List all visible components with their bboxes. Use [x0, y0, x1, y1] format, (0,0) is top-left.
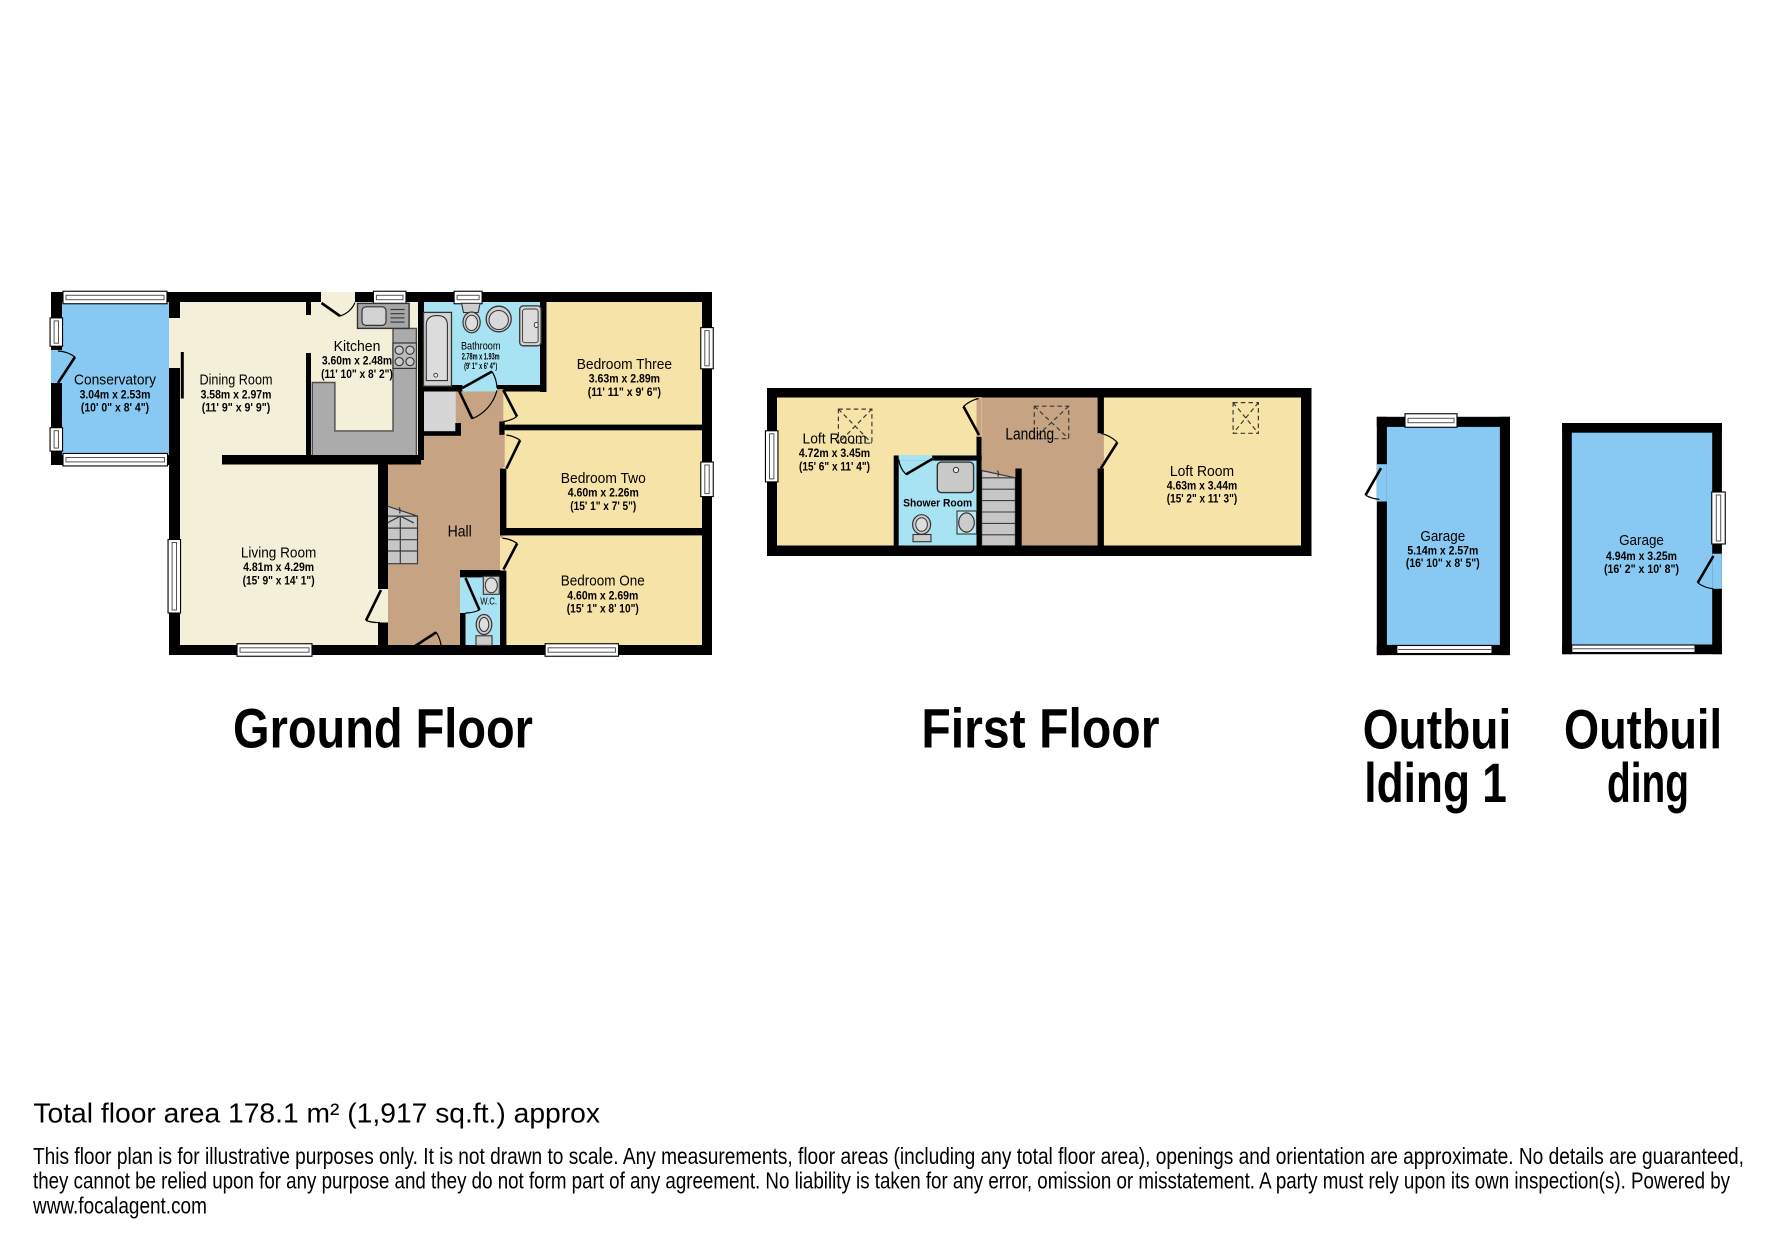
svg-text:This floor plan is for illustr: This floor plan is for illustrative purp…: [33, 1143, 1744, 1169]
svg-text:Ground Floor: Ground Floor: [233, 697, 533, 760]
svg-text:(10' 0" x 8' 4"): (10' 0" x 8' 4"): [81, 401, 149, 415]
svg-text:First Floor: First Floor: [921, 697, 1159, 760]
svg-text:www.focalagent.com: www.focalagent.com: [32, 1193, 207, 1219]
svg-text:3.63m x 2.89m: 3.63m x 2.89m: [589, 372, 660, 386]
svg-text:Bedroom Two: Bedroom Two: [561, 471, 646, 487]
svg-text:ding: ding: [1607, 751, 1689, 814]
svg-text:W.C.: W.C.: [480, 597, 497, 608]
svg-text:Bedroom Three: Bedroom Three: [577, 357, 672, 373]
svg-text:Bedroom One: Bedroom One: [561, 574, 645, 590]
svg-text:4.94m x 3.25m: 4.94m x 3.25m: [1606, 549, 1677, 563]
svg-text:(9' 1" x 6' 4"): (9' 1" x 6' 4"): [464, 361, 497, 371]
svg-text:(15' 1" x 8' 10"): (15' 1" x 8' 10"): [567, 602, 639, 616]
svg-text:Shower Room: Shower Room: [903, 497, 972, 509]
svg-text:(16' 10" x 8' 5"): (16' 10" x 8' 5"): [1406, 556, 1480, 570]
svg-text:4.81m x 4.29m: 4.81m x 4.29m: [243, 560, 314, 574]
svg-text:(11' 9" x 9' 9"): (11' 9" x 9' 9"): [202, 401, 271, 415]
svg-text:Living Room: Living Room: [241, 546, 317, 562]
svg-text:Loft Room: Loft Room: [1170, 464, 1234, 480]
svg-text:4.72m x 3.45m: 4.72m x 3.45m: [799, 446, 870, 460]
svg-text:(11' 11" x 9' 6"): (11' 11" x 9' 6"): [588, 385, 661, 399]
svg-text:(15' 1" x 7' 5"): (15' 1" x 7' 5"): [570, 499, 636, 513]
svg-text:4.60m x 2.26m: 4.60m x 2.26m: [568, 486, 639, 500]
svg-text:4.63m x 3.44m: 4.63m x 3.44m: [1167, 479, 1238, 493]
svg-text:Conservatory: Conservatory: [74, 373, 157, 389]
svg-text:3.04m x 2.53m: 3.04m x 2.53m: [80, 387, 151, 401]
svg-text:Kitchen: Kitchen: [334, 339, 381, 355]
svg-text:3.60m x 2.48m: 3.60m x 2.48m: [322, 354, 392, 368]
svg-text:(16' 2" x 10' 8"): (16' 2" x 10' 8"): [1604, 562, 1679, 576]
svg-text:Hall: Hall: [448, 524, 472, 541]
svg-text:(15' 9" x 14' 1"): (15' 9" x 14' 1"): [243, 573, 315, 587]
svg-text:Total floor area 178.1 m² (1,9: Total floor area 178.1 m² (1,917 sq.ft.)…: [33, 1098, 600, 1129]
svg-text:(11' 10" x 8' 2"): (11' 10" x 8' 2"): [321, 367, 393, 381]
svg-text:lding 1: lding 1: [1364, 751, 1507, 814]
svg-text:Dining Room: Dining Room: [200, 373, 273, 389]
svg-text:(15' 6" x 11' 4"): (15' 6" x 11' 4"): [799, 459, 870, 473]
svg-text:Landing: Landing: [1005, 425, 1054, 444]
svg-text:3.58m x 2.97m: 3.58m x 2.97m: [201, 387, 272, 401]
svg-text:Garage: Garage: [1619, 533, 1664, 549]
svg-text:Loft Room: Loft Room: [803, 431, 867, 447]
svg-text:(15' 2" x 11' 3"): (15' 2" x 11' 3"): [1167, 492, 1237, 506]
svg-text:4.60m x 2.69m: 4.60m x 2.69m: [567, 588, 638, 602]
svg-text:they cannot be relied upon for: they cannot be relied upon for any purpo…: [33, 1168, 1730, 1194]
